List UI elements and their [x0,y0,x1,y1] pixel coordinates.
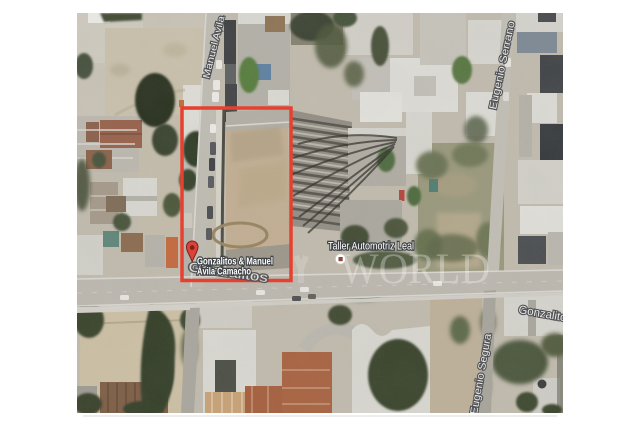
svg-text:WORLD: WORLD [340,246,490,293]
svg-text:Ávila Camacho: Ávila Camacho [197,264,251,277]
svg-text:Taller Automotriz Leal: Taller Automotriz Leal [328,241,414,253]
